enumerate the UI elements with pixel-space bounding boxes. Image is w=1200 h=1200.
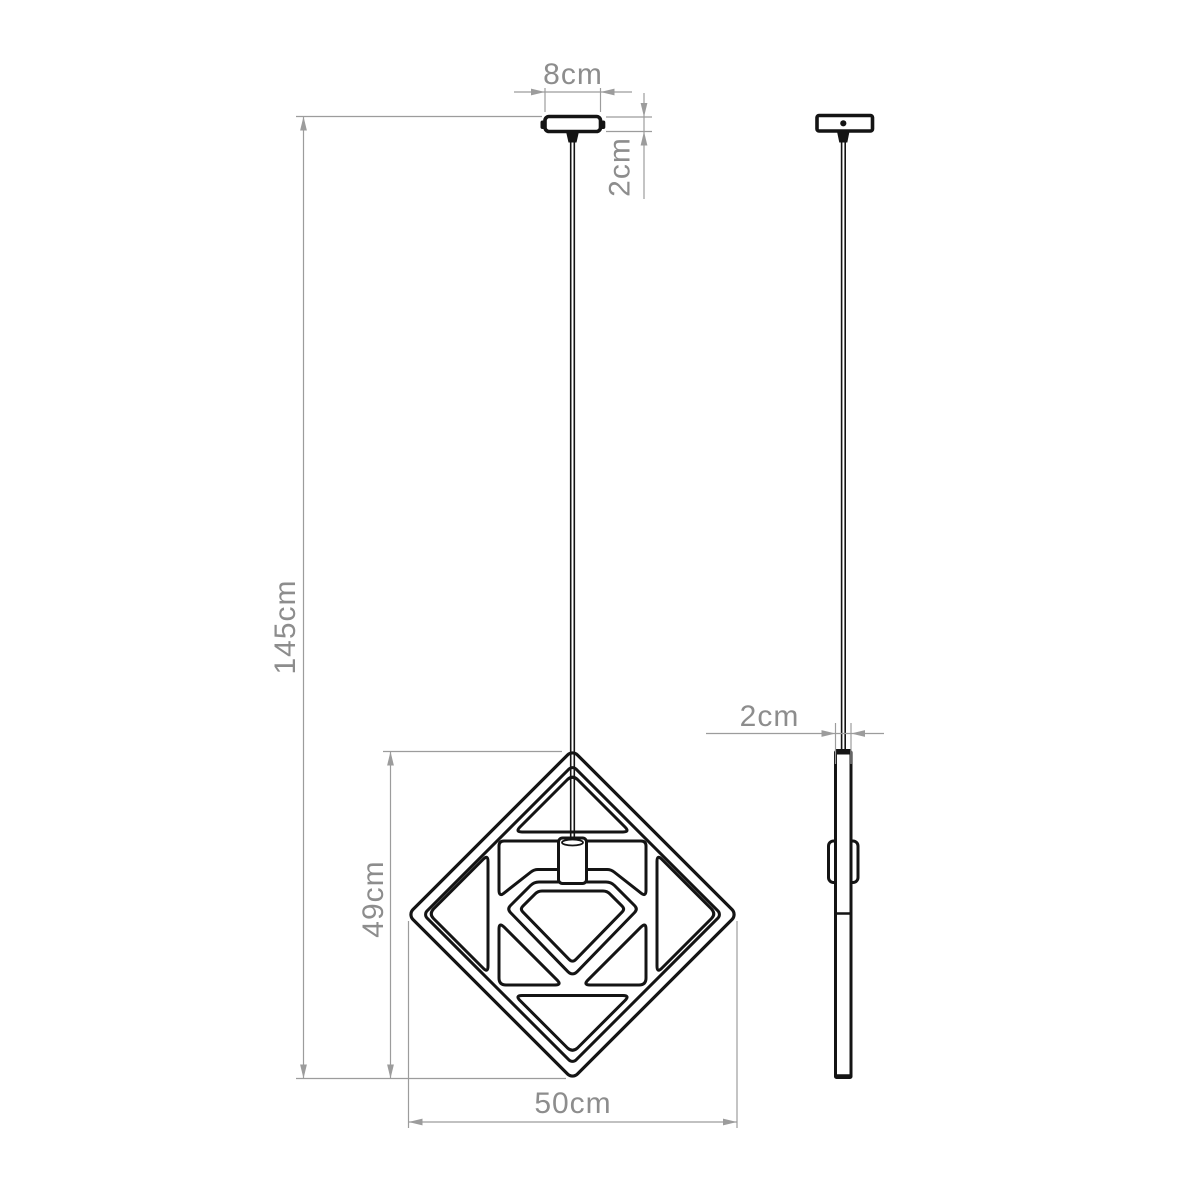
- socket-top-rim: [562, 840, 583, 846]
- cord-grip-front: [566, 132, 579, 143]
- dim-canopy-height-label: 2cm: [604, 137, 637, 197]
- canopy-front-left-nub: [541, 121, 547, 130]
- arrow-shade-width-left: [409, 1119, 423, 1126]
- arrow-canopy-height-top: [641, 103, 648, 117]
- arrow-canopy-height-bottom: [641, 132, 648, 146]
- dimension-arrows: [300, 89, 865, 1126]
- dim-shade-height-label: 49cm: [357, 860, 390, 937]
- dim-canopy-width-label: 8cm: [543, 58, 603, 91]
- shade-diamond-inner-edge: [424, 766, 722, 1064]
- dim-shade-thickness-label: 2cm: [740, 700, 800, 733]
- dimension-labels: 8cm 2cm 145cm 49cm 50cm 2cm: [269, 58, 799, 1120]
- dim-shade-width-label: 50cm: [534, 1087, 611, 1120]
- shade-diamond-outer-edge: [408, 750, 737, 1079]
- dimension-lines: [296, 88, 884, 1128]
- solid-fittings: [541, 120, 852, 754]
- arrow-shade-height-top: [387, 752, 394, 766]
- cord-grip-side: [837, 132, 850, 143]
- arrow-total-drop-top: [300, 117, 307, 131]
- arrow-shade-width-right: [723, 1119, 737, 1126]
- arrow-shade-thickness-right: [851, 730, 865, 737]
- canopy-front-right-nub: [600, 121, 606, 130]
- dim-total-drop-label: 145cm: [269, 579, 302, 674]
- technical-drawing-canvas: 8cm 2cm 145cm 49cm 50cm 2cm: [0, 0, 1200, 1200]
- center-diamond-ring-inner: [521, 891, 623, 961]
- dim-total-drop-lines: [296, 117, 566, 1079]
- canopy-front: [545, 117, 601, 132]
- cutout-triangle-left: [431, 857, 488, 970]
- pendant-lamp-dimension-drawing: 8cm 2cm 145cm 49cm 50cm 2cm: [0, 0, 1200, 1200]
- arrow-shade-height-bottom: [387, 1065, 394, 1079]
- cutout-triangle-right: [657, 857, 714, 970]
- arrow-shade-thickness-left: [822, 730, 836, 737]
- canopy-side-pin: [840, 120, 846, 126]
- profile-top-cap: [835, 749, 852, 755]
- arrow-total-drop-bottom: [300, 1065, 307, 1079]
- front-view-outlines: [408, 117, 737, 1079]
